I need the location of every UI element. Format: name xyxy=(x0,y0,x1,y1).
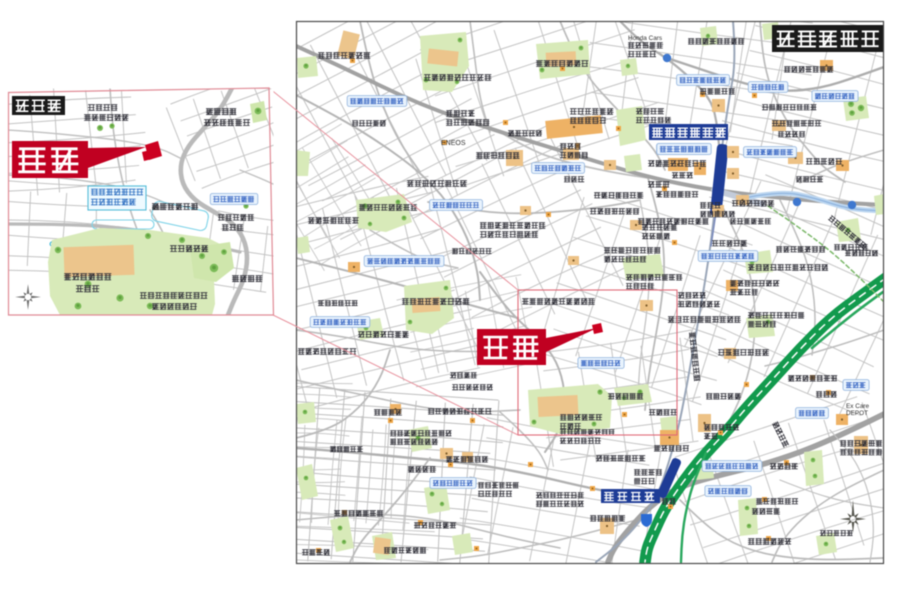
svg-text:ENEOS: ENEOS xyxy=(441,140,466,147)
svg-text:Ex Care: Ex Care xyxy=(846,403,870,410)
svg-text:DEPOT: DEPOT xyxy=(846,410,868,417)
svg-text:au: au xyxy=(152,205,160,212)
svg-text:Honda Cars: Honda Cars xyxy=(628,35,662,42)
